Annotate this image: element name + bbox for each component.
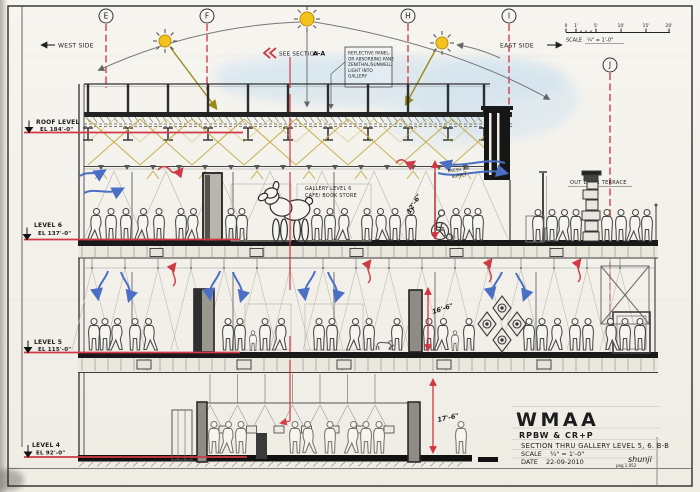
- date-value: 22-09-2010: [546, 458, 584, 466]
- grid-bubble-label: E: [104, 12, 109, 21]
- cafe-bookstore-label: CAFE/ BOOK STORE: [305, 193, 357, 199]
- svg-text:5': 5': [594, 23, 598, 29]
- grid-bubble-label: H: [405, 12, 411, 21]
- reference-mark: [478, 457, 498, 462]
- svg-text:0: 0: [565, 23, 568, 29]
- svg-text:15': 15': [642, 23, 649, 29]
- svg-text:WEST SIDE: WEST SIDE: [58, 43, 94, 50]
- level-name: ROOF LEVEL: [36, 119, 80, 126]
- drawing-title: SECTION THRU GALLERY LEVEL 5, 6. B-B: [521, 442, 669, 450]
- level-elevation: EL 184'-0": [40, 127, 73, 133]
- svg-text:SCALE: SCALE: [566, 38, 582, 44]
- pedestal: [256, 433, 267, 459]
- svg-text:ZENITHAL/SUNWELL: ZENITHAL/SUNWELL: [348, 62, 392, 68]
- sheet-ref: pag 1.052: [616, 463, 637, 468]
- level-name: LEVEL 5: [34, 339, 62, 346]
- scale-label: SCALE: [521, 450, 542, 458]
- scan-edge-left: [0, 0, 8, 492]
- svg-text:20': 20': [665, 23, 672, 29]
- architectural-section-sheet: E F H I J WEST SIDE EAST SIDE SEE SECTIO…: [0, 0, 700, 492]
- door-jamb: [197, 402, 207, 462]
- project-title: WMAA: [516, 409, 599, 431]
- level-elevation: EL 92'-0": [36, 451, 65, 457]
- svg-text:10': 10': [617, 23, 624, 29]
- sun-icon: [294, 6, 320, 32]
- sun-icon: [153, 29, 177, 53]
- svg-text:1': 1': [574, 23, 578, 29]
- floor-slab-level6: [78, 240, 658, 258]
- level-elevation: EL 137'-0": [38, 231, 71, 237]
- door-jamb: [408, 402, 420, 462]
- svg-text:EAST SIDE: EAST SIDE: [500, 43, 534, 50]
- grid-bubble-label: F: [205, 12, 209, 21]
- svg-text:LIGHT INTO: LIGHT INTO: [348, 68, 373, 74]
- grid-bubble-label: J: [608, 61, 611, 70]
- floor-slab-level5: [78, 352, 658, 373]
- architects: RPBW & CR+P: [519, 431, 594, 440]
- date-label: DATE: [521, 458, 538, 466]
- gallery-level6-label: GALLERY LEVEL 6: [305, 186, 352, 192]
- svg-text:¼" = 1'-0": ¼" = 1'-0": [587, 38, 613, 44]
- grid-bubble-label: I: [508, 12, 510, 21]
- level-elevation: EL 115'-0": [38, 347, 71, 353]
- level-name: LEVEL 4: [32, 442, 60, 449]
- svg-text:A-A: A-A: [313, 51, 325, 58]
- gallery-door-portal: [409, 290, 422, 352]
- svg-text:REFLECTIVE PANEL-: REFLECTIVE PANEL-: [348, 51, 391, 57]
- section-drawing: E F H I J WEST SIDE EAST SIDE SEE SECTIO…: [0, 0, 700, 492]
- svg-text:GALLERY: GALLERY: [348, 74, 367, 80]
- sun-icon: [430, 31, 454, 55]
- level-name: LEVEL 6: [34, 222, 62, 229]
- scale-value: ¼" = 1'-0": [550, 450, 584, 458]
- svg-text:OR ABSORBING PANE: OR ABSORBING PANE: [348, 56, 394, 62]
